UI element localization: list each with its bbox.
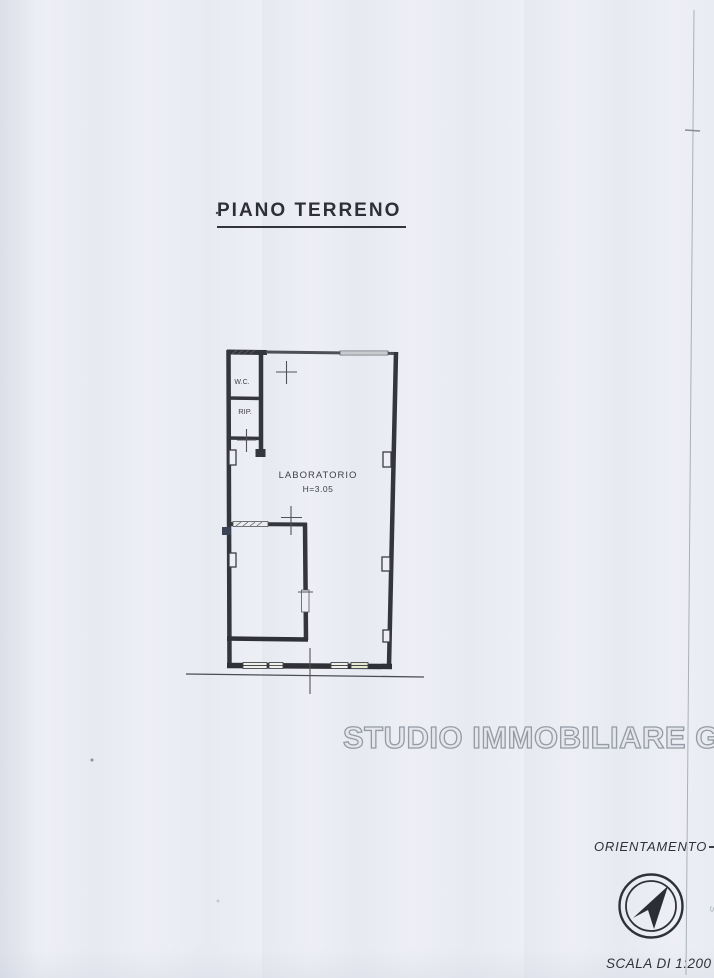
ground-line [186,674,424,677]
orientation-text: ORIENTAMENTO [594,839,707,854]
floor-plan-walls [186,350,424,694]
room-height-note: H=3.05 [303,484,334,494]
compass-north-icon [613,868,691,946]
room-label-wc: W.C. [234,379,249,386]
north-arrow-icon [633,886,668,929]
svg-text:S: S [708,906,714,912]
orientation-dash [709,846,714,848]
orientation-label: ORIENTAMENTO [594,839,714,854]
watermark: STUDIO IMMOBILIARE GM [343,720,714,756]
scanned-floorplan-page: PIANO TERRENO [0,0,714,978]
floor-plan-drawing: W.C. RIP. LABORATORIO H=3.05 [180,340,440,700]
scale-label: SCALA DI 1:200 [606,956,712,971]
room-label-rip: RIP. [238,407,252,416]
room-label-laboratorio: LABORATORIO [279,470,358,481]
page-title: PIANO TERRENO [217,200,406,228]
